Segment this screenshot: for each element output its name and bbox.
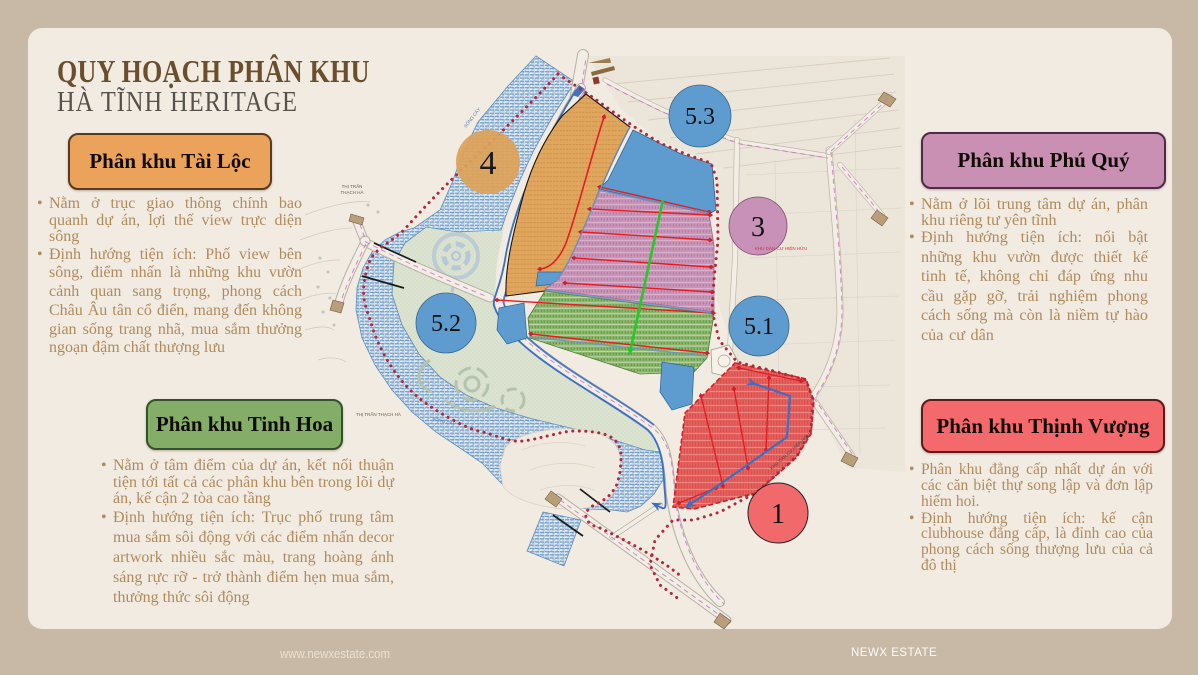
svg-text:5.2: 5.2 xyxy=(431,311,461,337)
svg-text:1: 1 xyxy=(771,499,785,530)
svg-text:KHU DÂN CƯ HIỆN HỮU: KHU DÂN CƯ HIỆN HỮU xyxy=(755,244,807,251)
svg-text:THỊ TRẤN: THỊ TRẤN xyxy=(342,183,363,189)
svg-text:5.3: 5.3 xyxy=(685,104,715,130)
svg-text:THỊ TRẤN THẠCH HÀ: THỊ TRẤN THẠCH HÀ xyxy=(356,411,401,417)
svg-text:3: 3 xyxy=(751,212,765,243)
svg-text:THẠCH HÀ: THẠCH HÀ xyxy=(340,189,363,195)
svg-text:4: 4 xyxy=(480,145,497,182)
svg-text:5.1: 5.1 xyxy=(744,314,774,340)
